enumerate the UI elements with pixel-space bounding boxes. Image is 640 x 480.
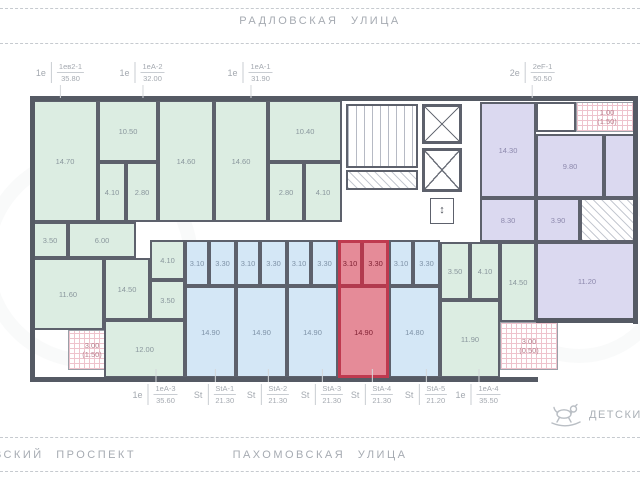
callout-leader-line bbox=[60, 85, 61, 98]
room-area-label: 11.20 bbox=[578, 277, 596, 286]
wall-hatch bbox=[346, 170, 418, 190]
staircase bbox=[346, 104, 418, 168]
poi-kindergarten: ДЕТСКИЙ bbox=[549, 402, 640, 428]
room-area-label: 3.10 bbox=[241, 259, 256, 268]
room-area-label: 14.90 bbox=[201, 328, 220, 337]
unit-area: 21.30 bbox=[215, 396, 234, 405]
callout-leader-line bbox=[215, 369, 216, 382]
unit-callout-StА-3: StStА-321.30 bbox=[297, 382, 347, 407]
room: 14.90 bbox=[287, 286, 338, 378]
room: 14.90 bbox=[185, 286, 236, 378]
unit-code: 1еА-1 bbox=[249, 62, 273, 73]
street-dash-line bbox=[0, 8, 640, 9]
room-area-label: 8.30 bbox=[501, 216, 516, 225]
exterior-wall bbox=[536, 318, 638, 323]
room: 3.50 bbox=[32, 222, 68, 258]
room-area-label: 3.00(1.50) bbox=[82, 341, 102, 359]
callout-leader-line bbox=[268, 369, 269, 382]
room: 14.60 bbox=[158, 100, 214, 222]
room: 12.00 bbox=[104, 320, 185, 378]
unit-code: 1ев2-1 bbox=[57, 62, 84, 73]
rocking-horse-icon bbox=[549, 402, 583, 428]
room-area-label: 9.80 bbox=[563, 162, 578, 171]
room: 14.80 bbox=[389, 286, 440, 378]
room: 4.10 bbox=[470, 242, 500, 300]
street-dash-line bbox=[0, 43, 640, 44]
room-area-label: 14.50 bbox=[118, 285, 137, 294]
room-area-label: 3.50 bbox=[43, 236, 58, 245]
unit-type: 2е bbox=[510, 68, 520, 78]
poi-label: ДЕТСКИЙ bbox=[589, 409, 640, 421]
unit-area: 21.30 bbox=[322, 396, 341, 405]
room: 3.30 bbox=[260, 240, 287, 286]
room: 4.10 bbox=[98, 162, 126, 222]
unit-area: 35.50 bbox=[479, 396, 498, 405]
unit-callout-StА-4: StStА-421.30 bbox=[347, 382, 397, 407]
room-area-label: 3.30 bbox=[419, 259, 434, 268]
room-area-label: 3.30 bbox=[215, 259, 230, 268]
room-area-label: 3.90 bbox=[551, 216, 566, 225]
unit-area: 35.80 bbox=[61, 74, 80, 83]
unit-type: St bbox=[405, 390, 414, 400]
room-area-label: 14.80 bbox=[405, 328, 424, 337]
callout-leader-line bbox=[426, 369, 427, 382]
room-area-label: 10.50 bbox=[119, 127, 138, 136]
room: 4.10 bbox=[150, 240, 185, 280]
room: 8.30 bbox=[480, 198, 536, 242]
room: 3.30 bbox=[413, 240, 440, 286]
unit-type: St bbox=[301, 390, 310, 400]
unit-type: St bbox=[247, 390, 256, 400]
balcony: 1.00(1.50) bbox=[576, 102, 638, 132]
floor-plan-page: РАДЛОВСКАЯ УЛИЦА 14.7010.504.102.8014.60… bbox=[0, 0, 640, 480]
room: 3.90 bbox=[536, 198, 580, 242]
room-area-label: 11.90 bbox=[461, 335, 479, 344]
room: 3.10 bbox=[389, 240, 413, 286]
room: 11.90 bbox=[440, 300, 500, 378]
unit-type: 1е bbox=[132, 390, 142, 400]
room: 10.40 bbox=[268, 100, 342, 162]
unit-code: StА-2 bbox=[266, 384, 289, 395]
room: 11.60 bbox=[32, 258, 104, 330]
unit-type: 1е bbox=[36, 68, 46, 78]
room-area-label: 1.00(1.50) bbox=[597, 108, 617, 126]
room-area-label: 14.90 bbox=[303, 328, 322, 337]
street-name-top: РАДЛОВСКАЯ УЛИЦА bbox=[0, 15, 640, 27]
room-area-label: 3.10 bbox=[394, 259, 409, 268]
street-dash-line bbox=[0, 437, 640, 438]
unit-area: 31.90 bbox=[251, 74, 270, 83]
unit-code: 1еА-3 bbox=[154, 384, 178, 395]
exterior-wall bbox=[30, 96, 35, 382]
unit-area: 50.50 bbox=[533, 74, 552, 83]
exterior-wall bbox=[30, 96, 638, 101]
unit-callout-1еА-1: 1е1еА-131.90 bbox=[223, 60, 276, 85]
highlighted-unit-outline bbox=[338, 240, 389, 378]
room-area-label: 11.60 bbox=[59, 290, 77, 299]
elevator-shaft bbox=[422, 148, 462, 192]
room: 6.00 bbox=[68, 222, 136, 258]
room: 14.60 bbox=[214, 100, 268, 222]
unit-callout-1ев2-1: 1е1ев2-135.80 bbox=[32, 60, 88, 85]
room: 3.10 bbox=[236, 240, 260, 286]
room: 3.30 bbox=[311, 240, 338, 286]
unit-callout-1еА-3: 1е1еА-335.60 bbox=[128, 382, 181, 407]
exterior-wall bbox=[633, 96, 638, 324]
unit-callout-StА-1: StStА-121.30 bbox=[190, 382, 240, 407]
unit-callout-StА-5: StStА-521.20 bbox=[401, 382, 451, 407]
balcony: 3.00(0.50) bbox=[500, 322, 558, 370]
room: 9.80 bbox=[536, 134, 604, 198]
room: 3.10 bbox=[287, 240, 311, 286]
unit-callout-2еF-1: 2е2еF-150.50 bbox=[506, 60, 559, 85]
room: 4.10 bbox=[304, 162, 342, 222]
room-area-label: 14.60 bbox=[232, 157, 251, 166]
room-area-label: 3.10 bbox=[190, 259, 205, 268]
unit-code: StА-1 bbox=[213, 384, 236, 395]
room-area-label: 12.00 bbox=[135, 345, 154, 354]
unit-code: StА-3 bbox=[320, 384, 343, 395]
room: 3.10 bbox=[185, 240, 209, 286]
room-area-label: 3.10 bbox=[292, 259, 307, 268]
wall-hatch bbox=[580, 198, 638, 242]
unit-type: 1е bbox=[227, 68, 237, 78]
room: 2.80 bbox=[126, 162, 158, 222]
unit-code: StА-5 bbox=[424, 384, 447, 395]
unit-type: 1е bbox=[119, 68, 129, 78]
unit-callout-1еА-2: 1е1еА-232.00 bbox=[115, 60, 168, 85]
callout-leader-line bbox=[532, 85, 533, 98]
room-area-label: 6.00 bbox=[95, 236, 110, 245]
room-area-label: 4.10 bbox=[316, 188, 331, 197]
room-area-label: 14.90 bbox=[252, 328, 271, 337]
room-area-label: 2.80 bbox=[135, 188, 150, 197]
unit-type: St bbox=[194, 390, 203, 400]
room-area-label: 3.00(0.50) bbox=[519, 337, 539, 355]
room: 3.30 bbox=[209, 240, 236, 286]
unit-area: 21.30 bbox=[268, 396, 287, 405]
unit-area: 35.60 bbox=[156, 396, 175, 405]
room: 3.50 bbox=[440, 242, 470, 300]
unit-area: 21.30 bbox=[372, 396, 391, 405]
room-area-label: ↕ bbox=[439, 204, 445, 217]
elevator-sign-icon: ↕ bbox=[430, 198, 454, 224]
room-area-label: 3.30 bbox=[317, 259, 332, 268]
unit-callout-StА-2: StStА-221.30 bbox=[243, 382, 293, 407]
callout-leader-line bbox=[155, 369, 156, 382]
room: 14.50 bbox=[104, 258, 150, 320]
elevator-shaft bbox=[422, 104, 462, 144]
callout-leader-line bbox=[372, 369, 373, 382]
unit-code: 1еА-4 bbox=[477, 384, 501, 395]
room: 2.80 bbox=[268, 162, 304, 222]
unit-code: 2еF-1 bbox=[531, 62, 555, 73]
room-area-label: 14.60 bbox=[177, 157, 196, 166]
room: 3.50 bbox=[150, 280, 185, 320]
unit-type: 1е bbox=[455, 390, 465, 400]
callout-leader-line bbox=[322, 369, 323, 382]
street-dash-line bbox=[0, 471, 640, 472]
room: 10.50 bbox=[98, 100, 158, 162]
room: 14.90 bbox=[236, 286, 287, 378]
callout-leader-line bbox=[250, 85, 251, 98]
callout-leader-line bbox=[142, 85, 143, 98]
callout-leader-line bbox=[478, 369, 479, 382]
room-area-label: 3.50 bbox=[448, 267, 463, 276]
room-area-label: 14.50 bbox=[509, 278, 528, 287]
unit-area: 21.20 bbox=[426, 396, 445, 405]
room-area-label: 14.30 bbox=[499, 146, 518, 155]
room bbox=[536, 102, 576, 132]
room: 14.70 bbox=[32, 100, 98, 222]
room-area-label: 2.80 bbox=[279, 188, 294, 197]
street-name-bottom-center: ПАХОМОВСКАЯ УЛИЦА bbox=[0, 449, 640, 461]
room-area-label: 4.10 bbox=[478, 267, 493, 276]
unit-area: 32.00 bbox=[143, 74, 162, 83]
room: 14.30 bbox=[480, 102, 536, 198]
room-area-label: 3.30 bbox=[266, 259, 281, 268]
room-area-label: 3.50 bbox=[160, 296, 175, 305]
room-area-label: 4.10 bbox=[105, 188, 120, 197]
room: 14.50 bbox=[500, 242, 536, 322]
room: 11.20 bbox=[536, 242, 638, 320]
room-area-label: 14.70 bbox=[56, 157, 75, 166]
unit-code: StА-4 bbox=[370, 384, 393, 395]
unit-type: St bbox=[351, 390, 360, 400]
unit-code: 1еА-2 bbox=[141, 62, 165, 73]
room-area-label: 10.40 bbox=[296, 127, 315, 136]
unit-callout-1еА-4: 1е1еА-435.50 bbox=[451, 382, 504, 407]
room-area-label: 4.10 bbox=[160, 256, 175, 265]
